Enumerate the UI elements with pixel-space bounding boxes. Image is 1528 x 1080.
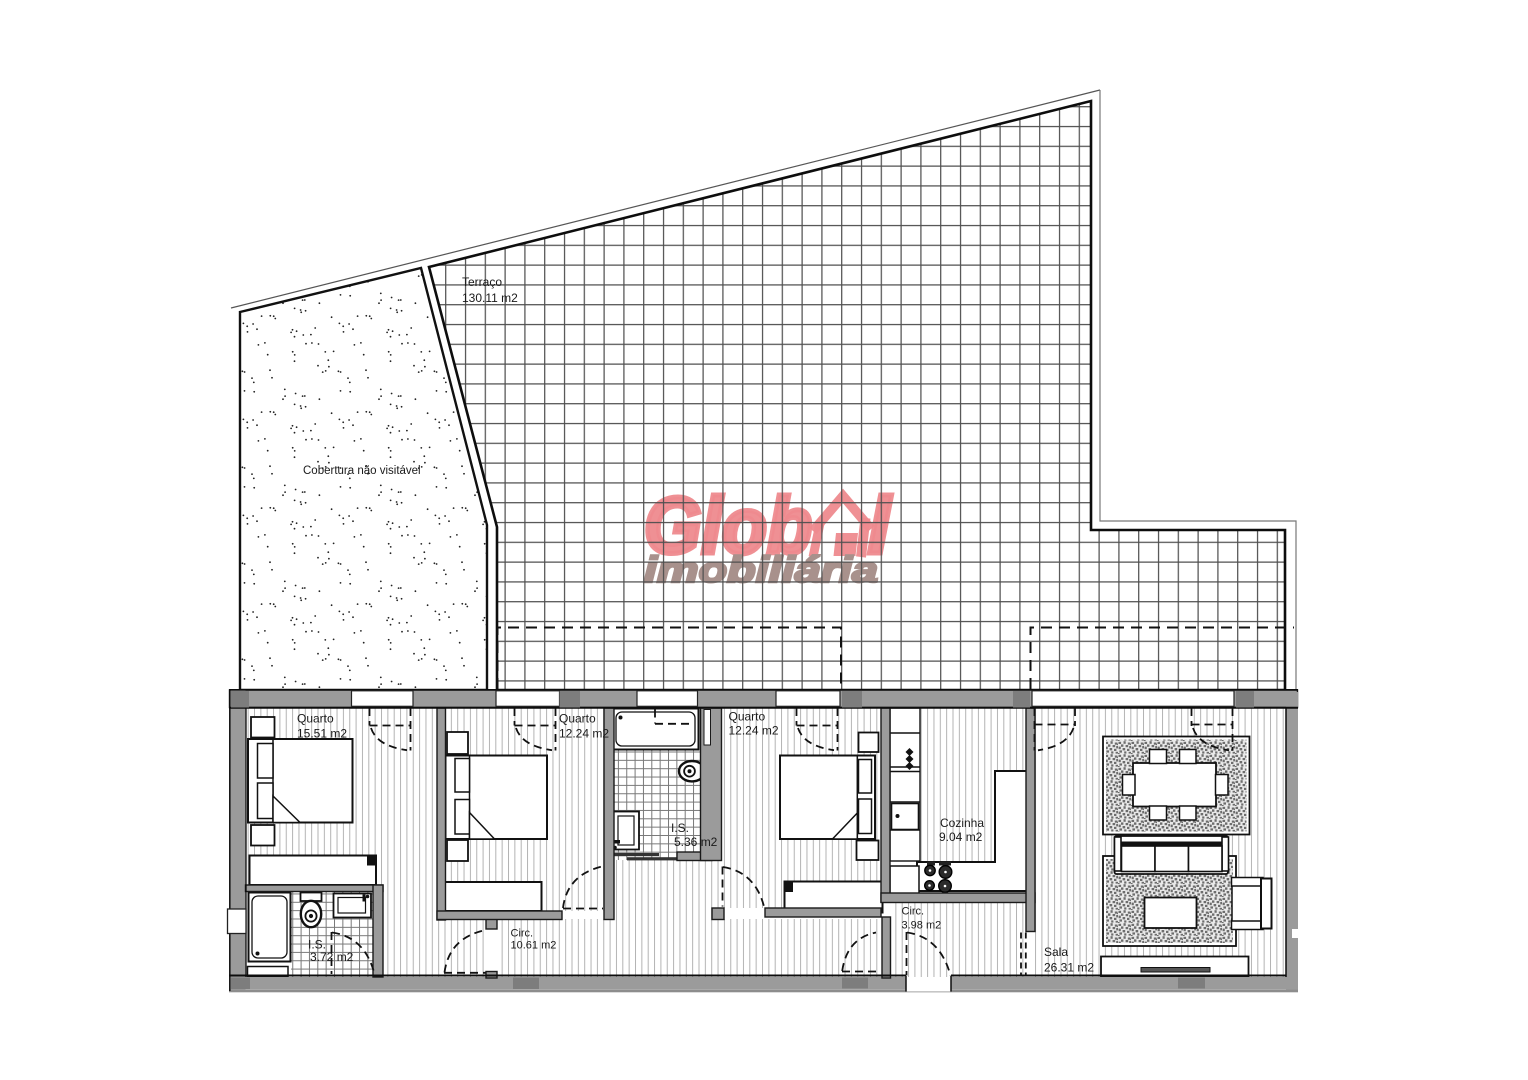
svg-text:Quarto: Quarto (729, 710, 766, 724)
svg-text:3.72 m2: 3.72 m2 (310, 950, 354, 964)
svg-text:12.24 m2: 12.24 m2 (729, 724, 779, 738)
svg-text:15.51 m2: 15.51 m2 (297, 727, 347, 741)
svg-text:130.11 m2: 130.11 m2 (462, 291, 518, 305)
svg-text:Cozinha: Cozinha (940, 816, 984, 830)
svg-text:10.61 m2: 10.61 m2 (511, 940, 557, 952)
svg-text:Cobertura não visitável: Cobertura não visitável (303, 465, 421, 477)
svg-text:12.24 m2: 12.24 m2 (559, 727, 609, 741)
svg-text:Circ.: Circ. (902, 906, 925, 918)
svg-text:5.36 m2: 5.36 m2 (674, 835, 718, 849)
svg-text:Quarto: Quarto (297, 712, 334, 726)
svg-text:3.98 m2: 3.98 m2 (902, 920, 942, 932)
svg-text:26.31 m2: 26.31 m2 (1044, 961, 1094, 975)
svg-text:9.04 m2: 9.04 m2 (939, 830, 983, 844)
svg-text:Circ.: Circ. (511, 928, 534, 940)
svg-text:I.S.: I.S. (671, 821, 689, 835)
svg-text:Quarto: Quarto (559, 712, 596, 726)
svg-text:Sala: Sala (1044, 945, 1068, 959)
svg-text:Terraço: Terraço (462, 275, 502, 289)
